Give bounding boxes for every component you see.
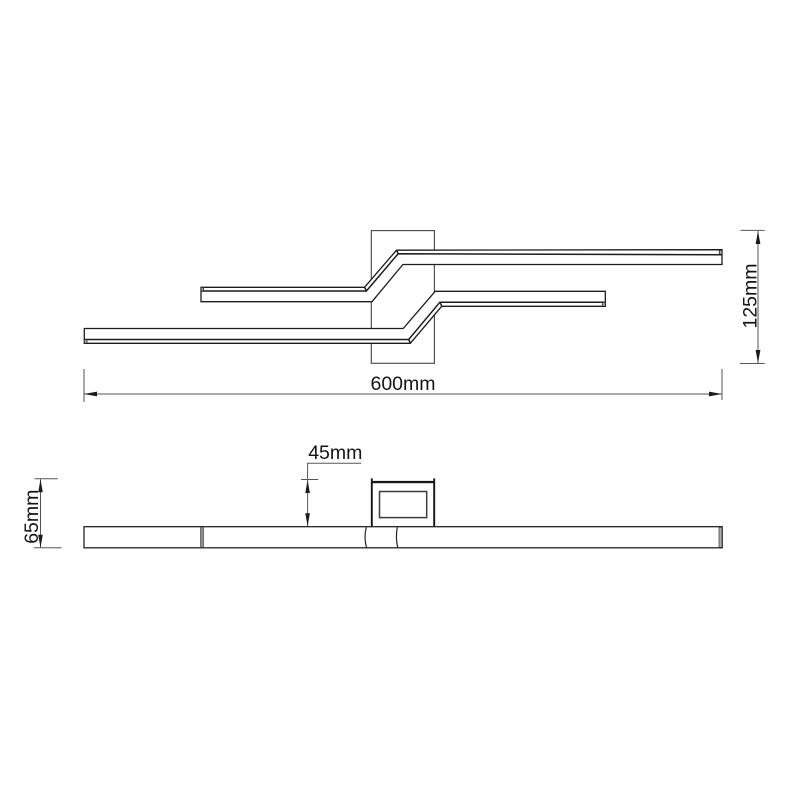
svg-text:600mm: 600mm <box>370 373 435 395</box>
svg-text:45mm: 45mm <box>308 442 362 464</box>
svg-text:125mm: 125mm <box>740 263 762 328</box>
svg-text:65mm: 65mm <box>21 490 43 544</box>
